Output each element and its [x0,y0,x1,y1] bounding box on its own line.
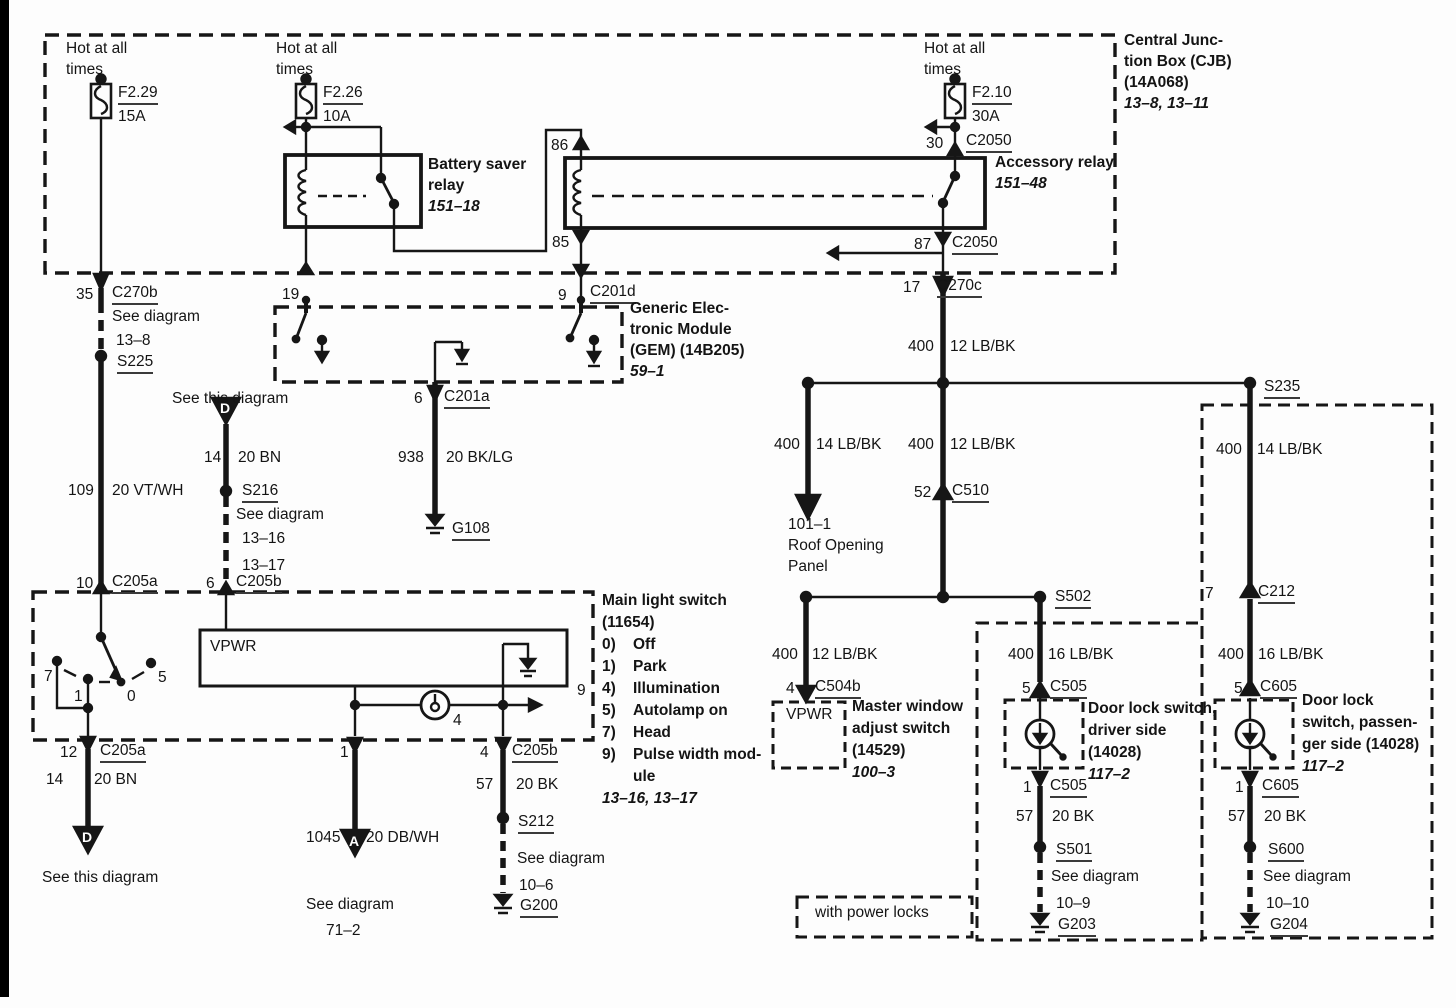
cjb-title-3: (14A068) [1124,74,1189,92]
wire-400a-num: 400 [908,338,934,356]
mls-title-1: Main light switch [602,592,727,610]
rotary-pos-7: 7 [44,668,53,686]
mls-title-2: (11654) [602,614,655,632]
pin-6-c205b: 6 [206,575,215,593]
mws-title-1: Master window [852,698,963,716]
fuse-f229-rating: 15A [118,108,146,126]
hot-at-all-times-2b: times [276,61,313,79]
see-diagram-712a: See diagram [306,896,394,914]
pin-87: 87 [914,236,931,254]
pin-6-c201a: 6 [414,390,423,408]
wire-57d-num: 57 [1016,808,1033,826]
gem-page-ref: 59–1 [630,363,664,381]
conn-c505-top: C505 [1050,678,1087,699]
dls-pass-1: Door lock [1302,692,1373,710]
rotary-pos-0: 0 [127,688,136,706]
conn-c205b-top: C205b [236,573,282,594]
dls-pass-ref: 117–2 [1302,758,1344,776]
conn-c205b-bottom: C205b [512,742,558,763]
wire-57p-color: 20 BK [1264,808,1306,826]
cjb-page-ref: 13–8, 13–11 [1124,95,1209,113]
conn-c205a-bottom: C205a [100,742,146,763]
splice-s235: S235 [1264,378,1300,399]
splice-s502: S502 [1055,588,1091,609]
mws-title-3: (14529) [852,742,905,760]
wire-14-top-color: 20 BN [238,449,281,467]
ground-g203: G203 [1058,916,1096,937]
see-diagram-1010a: See diagram [1263,868,1351,886]
battery-saver-relay-1: Battery saver [428,156,526,174]
mls-opt4-num: 4) [602,680,616,698]
see-diagram-13-8b: 13–8 [116,332,150,350]
conn-c270b: C270b [112,284,158,305]
hot-at-all-times-3b: times [924,61,961,79]
see-diagram-712b: 71–2 [326,922,360,940]
rotary-pos-5: 5 [158,669,167,687]
dls-pass-3: ger side (14028) [1302,736,1419,754]
wire-400d-num: 400 [1216,441,1242,459]
see-diagram-13-8a: See diagram [112,308,200,326]
wire-400c-color: 12 LB/BK [950,436,1016,454]
conn-c2050-top: C2050 [966,132,1012,153]
lamp-pin-4: 4 [453,712,462,730]
labels-layer: Hot at alltimesF2.2915AHot at alltimesF2… [0,0,1456,1008]
conn-c505-bottom: C505 [1050,777,1087,798]
splice-s216: S216 [242,482,278,503]
pin-7-c212: 7 [1205,585,1214,603]
vpwr-mls: VPWR [210,638,257,656]
roof-panel-2: Panel [788,558,828,576]
dls-driver-2: driver side [1088,722,1166,740]
pin-1-c605: 1 [1235,779,1244,797]
hot-at-all-times-2a: Hot at all [276,40,337,58]
pin-1-c505: 1 [1023,779,1032,797]
mls-opt1-num: 1) [602,658,616,676]
conn-c201a: C201a [444,388,490,409]
roof-panel-1: Roof Opening [788,537,884,555]
roof-panel-ref: 101–1 [788,516,831,534]
fuse-f229-name: F2.29 [118,84,158,105]
wire-938-num: 938 [398,449,424,467]
splice-s225: S225 [117,353,153,374]
see-diagram-1316b: 13–16 [242,530,285,548]
pin-1-mls: 1 [340,744,349,762]
see-diagram-106b: 10–6 [519,877,553,895]
splice-s212: S212 [518,813,554,834]
gem-title-2: tronic Module [630,321,732,339]
see-diagram-1010b: 10–10 [1266,895,1309,913]
wire-400e-color: 12 LB/BK [812,646,878,664]
pin-17: 17 [903,279,920,297]
accessory-relay-ref: 151–48 [995,175,1047,193]
conn-c205a-top: C205a [112,573,158,594]
mls-opt5-num: 5) [602,702,616,720]
dls-driver-1: Door lock switch, [1088,700,1216,718]
hot-at-all-times-1b: times [66,61,103,79]
conn-c510: C510 [952,482,989,503]
wire-57p-num: 57 [1228,808,1245,826]
dls-pass-2: switch, passen- [1302,714,1417,732]
wire-400g-color: 16 LB/BK [1258,646,1324,664]
ground-g108: G108 [452,520,490,541]
wire-14-bot-color: 20 BN [94,771,137,789]
mls-opt9-val: Pulse width mod- [633,746,761,764]
pin-5-c505: 5 [1022,680,1031,698]
conn-c605-bottom: C605 [1262,777,1299,798]
pin-30: 30 [926,135,943,153]
wire-57-mls-num: 57 [476,776,493,794]
wire-400e-num: 400 [772,646,798,664]
mls-opt7-num: 7) [602,724,616,742]
vpwr-mws: VPWR [786,706,833,724]
cjb-title-1: Central Junc- [1124,32,1223,50]
see-diagram-106a: See diagram [517,850,605,868]
splice-s501: S501 [1056,841,1092,862]
fuse-f226-name: F2.26 [323,84,363,105]
see-this-diagram-top: See this diagram [172,390,288,408]
wire-400c-num: 400 [908,436,934,454]
pin-85: 85 [552,234,569,252]
pin-19: 19 [282,286,299,304]
fuse-f226-rating: 10A [323,108,351,126]
battery-saver-relay-2: relay [428,177,464,195]
wire-14-bot-num: 14 [46,771,63,789]
wire-1045-color: 20 DB/WH [366,829,439,847]
mws-title-2: adjust switch [852,720,950,738]
see-diagram-109a: See diagram [1051,868,1139,886]
wire-14-top-num: 14 [204,449,221,467]
pin-5-c605: 5 [1234,680,1243,698]
see-this-diagram-bottom: See this diagram [42,869,158,887]
wire-400f-color: 16 LB/BK [1048,646,1114,664]
wire-938-color: 20 BK/LG [446,449,513,467]
mls-opt7-val: Head [633,724,671,742]
gem-title-1: Generic Elec- [630,300,729,318]
wire-400g-num: 400 [1218,646,1244,664]
wire-109-color: 20 VT/WH [112,482,183,500]
pin-10: 10 [76,575,93,593]
see-diagram-109b: 10–9 [1056,895,1090,913]
pin-12: 12 [60,744,77,762]
mls-opt0-num: 0) [602,636,616,654]
mls-opt1-val: Park [633,658,667,676]
wiring-diagram-page: Hot at alltimesF2.2915AHot at alltimesF2… [0,0,1456,1008]
offpage-letter-d-bottom: D [82,829,92,845]
with-power-locks: with power locks [815,904,929,922]
rotary-pos-1: 1 [74,688,83,706]
mls-opt4-val: Illumination [633,680,720,698]
conn-c605-top: C605 [1260,678,1297,699]
wire-57-mls-color: 20 BK [516,776,558,794]
wire-400d-color: 14 LB/BK [1257,441,1323,459]
ground-g204: G204 [1270,916,1308,937]
wire-57d-color: 20 BK [1052,808,1094,826]
pin-4-mls: 4 [480,744,489,762]
see-diagram-1316a: See diagram [236,506,324,524]
wire-1045-num: 1045 [306,829,340,847]
dls-driver-ref: 117–2 [1088,766,1130,784]
mws-page-ref: 100–3 [852,764,895,782]
wire-400a-color: 12 LB/BK [950,338,1016,356]
conn-c2050-bottom: C2050 [952,234,998,255]
wire-400b-color: 14 LB/BK [816,436,882,454]
pin-52: 52 [914,484,931,502]
gem-title-3: (GEM) (14B205) [630,342,745,360]
mls-opt0-val: Off [633,636,655,654]
wire-109-num: 109 [68,482,94,500]
hot-at-all-times-1a: Hot at all [66,40,127,58]
dls-driver-3: (14028) [1088,744,1141,762]
mls-opt9-val2: ule [633,768,655,786]
mls-opt5-val: Autolamp on [633,702,728,720]
wire-400f-num: 400 [1008,646,1034,664]
offpage-letter-a: A [349,833,359,849]
cjb-title-2: tion Box (CJB) [1124,53,1232,71]
pin-9-c201d: 9 [558,287,567,305]
splice-s600: S600 [1268,841,1304,862]
offpage-letter-d-top: D [220,400,230,416]
ground-g200: G200 [520,897,558,918]
fuse-f210-rating: 30A [972,108,1000,126]
pin-9-mls: 9 [577,682,586,700]
accessory-relay-1: Accessory relay [995,154,1114,172]
mls-opt9-num: 9) [602,746,616,764]
mls-page-ref: 13–16, 13–17 [602,790,697,808]
conn-c201d: C201d [590,283,636,304]
conn-c212: C212 [1258,583,1295,604]
battery-saver-relay-ref: 151–18 [428,198,480,216]
fuse-f210-name: F2.10 [972,84,1012,105]
pin-86: 86 [551,137,568,155]
wire-400b-num: 400 [774,436,800,454]
hot-at-all-times-3a: Hot at all [924,40,985,58]
conn-c270c: C270c [937,277,982,298]
pin-4-c504b: 4 [786,680,795,698]
pin-35: 35 [76,286,93,304]
conn-c504b: C504b [815,678,861,699]
